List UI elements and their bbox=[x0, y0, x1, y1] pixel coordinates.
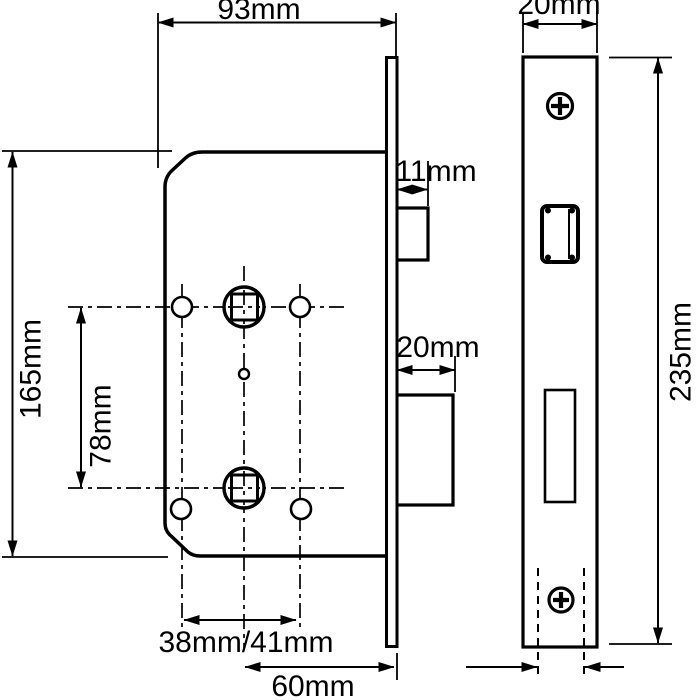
dim-label-case-width: 93mm bbox=[217, 0, 300, 26]
dim-label-faceplate-width: 20mm bbox=[517, 0, 600, 21]
dim-label-follower-centres: 78mm bbox=[85, 384, 118, 467]
latch-bolt-front bbox=[396, 208, 428, 260]
dim-label-deadbolt-projection: 20mm bbox=[396, 331, 479, 364]
dim-label-latch-projection: 11mm bbox=[395, 155, 476, 188]
lock-case-outline bbox=[165, 152, 386, 556]
fixing-hole-top-left bbox=[172, 297, 192, 317]
fixing-hole-bottom-right bbox=[291, 499, 311, 519]
dim-label-case-height: 165mm bbox=[15, 319, 48, 419]
small-centre-hole bbox=[239, 369, 249, 379]
latch-corner-dot-2 bbox=[569, 208, 575, 214]
latch-corner-dot-3 bbox=[545, 255, 551, 261]
dim-label-spindle-backset: 60mm bbox=[271, 670, 354, 700]
latch-corner-dot-4 bbox=[569, 255, 575, 261]
dim-label-backset-options: 38mm/41mm bbox=[158, 626, 333, 659]
lock-dimension-drawing: 93mm 20mm 11mm 20mm 165mm 78mm 235mm 38m… bbox=[0, 0, 700, 700]
dim-label-faceplate-height: 235mm bbox=[665, 302, 698, 402]
latch-corner-dot-1 bbox=[545, 208, 551, 214]
fixing-hole-top-right bbox=[290, 297, 310, 317]
technical-drawing-canvas: 93mm 20mm 11mm 20mm 165mm 78mm 235mm 38m… bbox=[0, 0, 700, 700]
dead-bolt-front bbox=[396, 395, 453, 505]
faceplate-side bbox=[523, 57, 597, 647]
fixing-hole-bottom-left bbox=[171, 499, 191, 519]
